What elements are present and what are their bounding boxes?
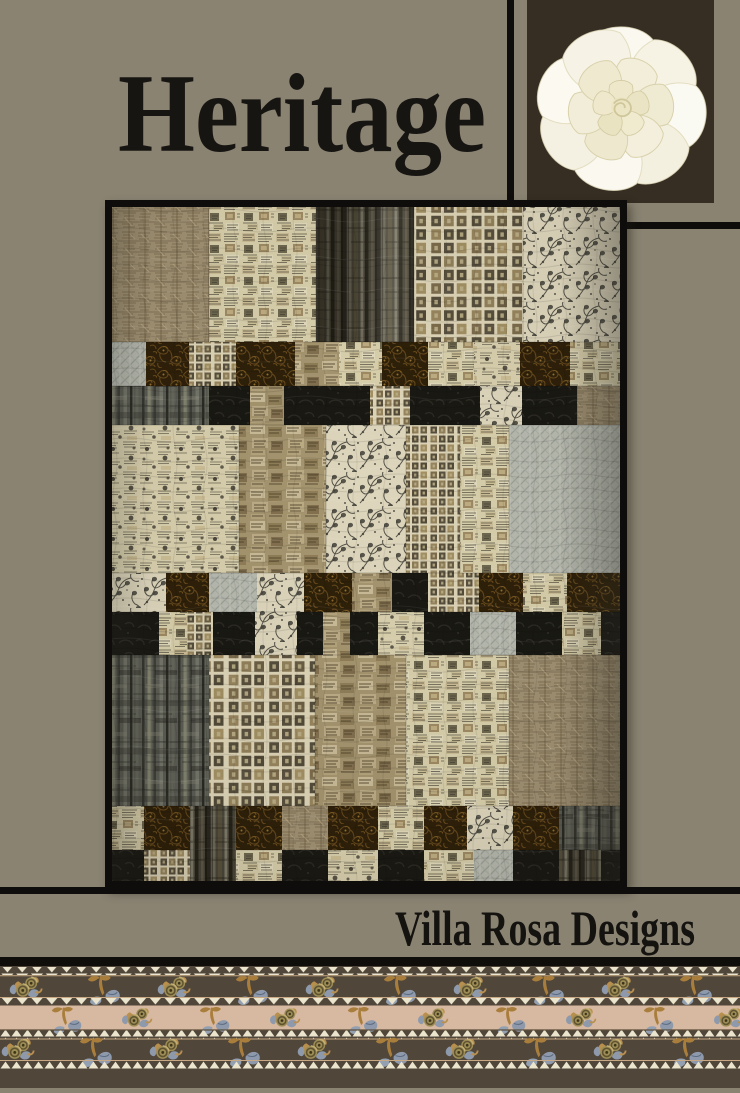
svg-text:Villa Rosa Designs: Villa Rosa Designs bbox=[395, 900, 695, 956]
svg-text:Heritage: Heritage bbox=[118, 52, 486, 176]
